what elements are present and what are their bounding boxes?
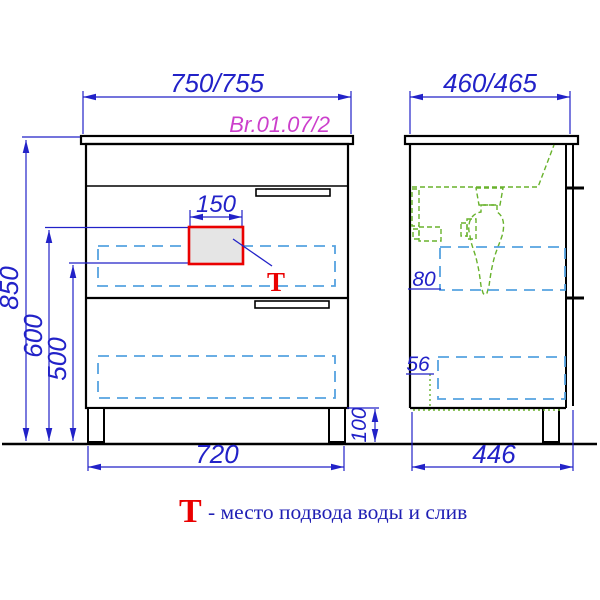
side-drawer-box-bottom [438,357,565,399]
front-leg-left [88,408,104,442]
model-code-label: Br.01.07/2 [229,112,330,137]
dim-100-label: 100 [348,407,371,442]
side-countertop [405,136,578,144]
front-handle-bottom [255,301,329,308]
front-countertop [81,136,353,144]
dim-850 [22,137,80,441]
legend-symbol-t: Т [179,493,202,530]
front-leg-right [329,408,345,442]
dim-460-465-label: 460/465 [443,68,538,98]
dim-80-label: 80 [412,268,436,291]
legend-caption: Т - место подвода воды и слив [179,493,467,530]
dim-446-label: 446 [472,439,516,469]
front-body [86,144,348,408]
trap-nut-small [461,223,467,236]
wall-bracket-clip [413,229,419,239]
sink-underside-profile [412,145,554,187]
front-drawer-box-bottom [98,356,335,398]
wall-bracket-strip [412,189,419,226]
drawing-canvas: Т 750/755 460/465 Br.01.07/2 850 600 500… [0,0,600,600]
drain-flange [476,188,503,205]
dim-850-label: 850 [0,266,24,310]
dim-720-label: 720 [195,439,239,469]
water-supply-zone-rect [189,227,243,264]
front-view-cabinet [81,136,353,442]
wall-bracket [419,227,441,241]
siphon-bottle-trap [469,205,504,295]
technical-drawing-vanity: Т 750/755 460/465 Br.01.07/2 850 600 500… [0,0,600,600]
front-handle-top [256,189,330,196]
drawer-inner-boxes [98,246,565,399]
supply-marker-t: Т [267,267,285,297]
side-leg [543,408,559,442]
side-drawer-box-top [440,247,565,290]
dim-56-label: 56 [406,353,430,376]
dim-750-755-label: 750/755 [170,68,265,98]
dim-150-label: 150 [196,191,237,218]
legend-text: - место подвода воды и слив [208,500,467,524]
dim-500-label: 500 [42,337,72,381]
